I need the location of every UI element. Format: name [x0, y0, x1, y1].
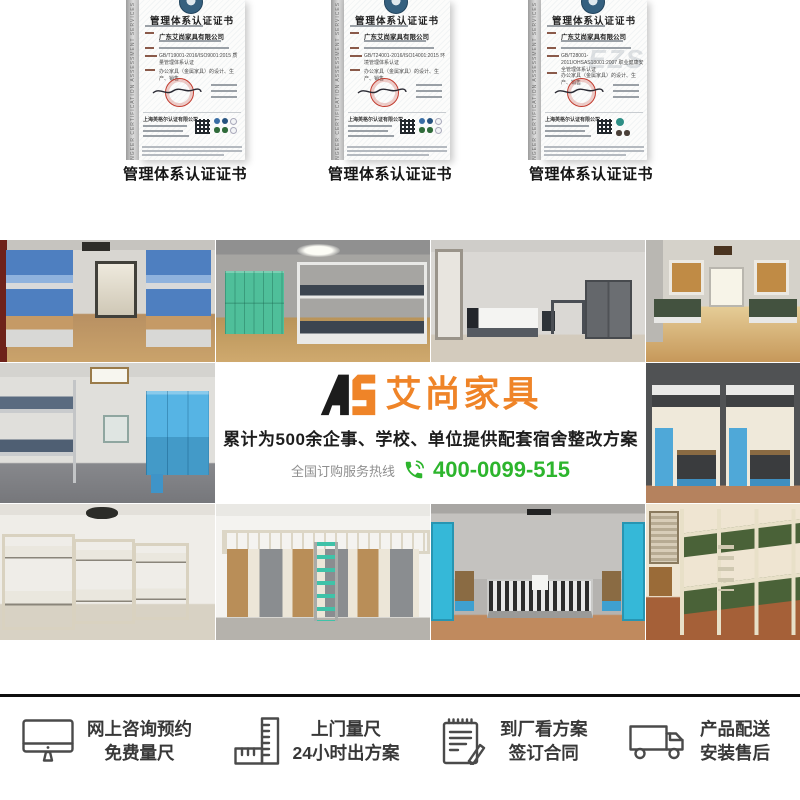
cabinet-shape: [585, 280, 632, 339]
bunk-bed-shape: [73, 539, 135, 624]
door-shape: [435, 249, 462, 340]
chair-shape: [151, 474, 164, 494]
service-online-consult: 网上咨询预约 免费量尺: [22, 717, 192, 765]
bunk-posts-shape: [680, 509, 800, 634]
phone-icon: [403, 459, 425, 481]
service-delivery-install: 产品配送 安装售后: [629, 717, 770, 765]
ceiling-light-shape: [714, 246, 732, 255]
badge-icon: [230, 118, 237, 125]
bunk-bed-shape: [297, 262, 427, 344]
signature-scribble: [356, 84, 408, 98]
photo-dark-loft-units-blue-lockers: [646, 363, 800, 503]
badge-icon: [222, 118, 228, 124]
ceiling-light-shape: [86, 507, 118, 519]
service-line1: 到厂看方案: [500, 717, 588, 741]
badge-icon: [427, 127, 433, 133]
certificate-side-band: INGEER CERTIFICATION ASSESSMENT SERVICES: [126, 0, 139, 160]
qr-code-icon: [195, 119, 210, 134]
single-beds-shape: [487, 579, 594, 618]
badge-icon: [222, 127, 228, 133]
picture-frame-shape: [103, 415, 129, 443]
badge-icon: [616, 118, 624, 126]
qr-code-icon: [400, 119, 415, 134]
ruler-icon: [234, 717, 280, 765]
ladder-shape: [718, 545, 733, 591]
as-logo-icon: [319, 372, 377, 416]
desk-chair-shape: [455, 571, 474, 611]
loft-unit-shape: [652, 385, 720, 486]
service-onsite-measure: 上门量尺 24小时出方案: [234, 717, 400, 765]
service-line2: 24小时出方案: [293, 741, 400, 765]
ceiling-light-shape: [297, 244, 340, 257]
page: { "certificates": { "caption": "管理体系认证证书…: [0, 0, 800, 800]
badge-icon: [435, 127, 442, 134]
certificate-emblem-icon: [384, 0, 408, 14]
bunk-bed-shape: [2, 534, 75, 630]
accreditation-badges: [419, 118, 447, 134]
certificate-quality: INGEER CERTIFICATION ASSESSMENT SERVICES…: [126, 0, 245, 160]
truck-icon: [629, 721, 687, 761]
bed-shape: [654, 299, 702, 343]
badge-icon: [214, 118, 220, 124]
photo-loft-wardrobe-desk-combo: [216, 504, 430, 640]
banner-tagline: 累计为500余企事、学校、单位提供配套宿舍整改方案: [216, 425, 645, 450]
photo-wood-floor-dorm-beds: [646, 240, 800, 362]
service-line2: 签订合同: [500, 741, 588, 765]
ceiling-light-shape: [82, 242, 110, 251]
logo: 艾尚家具: [216, 371, 645, 417]
bed-shape: [749, 299, 797, 343]
desk-shape: [551, 300, 585, 335]
service-line1: 上门量尺: [293, 717, 400, 741]
certificate-caption: 管理体系认证证书: [511, 163, 671, 184]
photo-blue-doors-single-beds: [431, 504, 645, 640]
service-line1: 网上咨询预约: [87, 717, 192, 741]
certificate-emblem-icon: [179, 0, 203, 14]
hotline-label: 全国订购服务热线: [291, 461, 395, 480]
certificate-standard: GB/T19001-2016/ISO9001:2015 质量管理体系认证: [159, 53, 242, 67]
blue-wardrobe-shape: [146, 391, 208, 475]
bunk-bed-shape: [0, 380, 76, 484]
brand-banner: 艾尚家具 累计为500余企事、学校、单位提供配套宿舍整改方案 全国订购服务热线 …: [216, 363, 645, 503]
cabinet-shape: [649, 567, 672, 597]
certificate-emblem-icon: [581, 0, 605, 14]
bunk-bed-shape: [6, 250, 73, 348]
badge-icon: [214, 127, 220, 133]
photo-single-bed-desk-cabinet: [431, 240, 645, 362]
certificate-standard: GB/T24001-2016/ISO14001:2015 环境管理体系认证: [364, 53, 447, 67]
service-line2: 免费量尺: [87, 741, 192, 765]
photo-bunk-and-blue-wardrobe-room: [0, 363, 215, 503]
signature-scribble: [151, 84, 203, 98]
contract-icon: [441, 717, 487, 765]
ceiling-light-shape: [527, 509, 551, 514]
hotline: 全国订购服务热线 400-0099-515: [216, 457, 645, 483]
accreditation-badges: [616, 118, 644, 136]
certificate-environment: INGEER CERTIFICATION ASSESSMENT SERVICES…: [331, 0, 450, 160]
photo-dorm-blue-bunks-desks: [0, 240, 215, 362]
certificate-ohs: INGEER CERTIFICATION ASSESSMENT SERVICES…: [528, 0, 647, 160]
window-shape: [709, 267, 744, 308]
photo-grid: 艾尚家具 累计为500余企事、学校、单位提供配套宿舍整改方案 全国订购服务热线 …: [0, 240, 800, 640]
desk-chair-shape: [602, 571, 621, 611]
certificate-standard: GB/T28001-2011/OHSAS18001:2007 职业健康安全管理体…: [561, 53, 644, 73]
overhead-cabinet-shape: [754, 260, 789, 295]
blue-door-shape: [622, 522, 645, 621]
certificate-side-band: INGEER CERTIFICATION ASSESSMENT SERVICES: [331, 0, 344, 160]
loft-unit-shape: [726, 385, 794, 486]
overhead-cabinet-shape: [669, 260, 704, 295]
window-shape: [95, 261, 138, 318]
hotline-number[interactable]: 400-0099-515: [433, 457, 570, 483]
certificate-issuer: 上海英格尔认证有限公司: [348, 116, 403, 123]
badge-icon: [419, 127, 425, 133]
bunk-bed-shape: [133, 543, 188, 620]
certificate-caption: 管理体系认证证书: [105, 163, 265, 184]
logo-text: 艾尚家具: [385, 376, 541, 412]
monitor-icon: [22, 719, 74, 763]
badge-icon: [624, 130, 630, 136]
certificates-section: INGEER CERTIFICATION ASSESSMENT SERVICES…: [0, 0, 800, 240]
accreditation-badges: [214, 118, 242, 134]
badge-icon: [230, 127, 237, 134]
ceiling-light-shape: [90, 367, 128, 384]
badge-icon: [616, 130, 622, 136]
signature-scribble: [553, 84, 605, 98]
locker-shape: [225, 271, 285, 334]
service-factory-contract: 到厂看方案 签订合同: [441, 717, 588, 765]
service-line1: 产品配送: [700, 717, 770, 741]
photo-cream-bunk-bed-room: [0, 504, 215, 640]
badge-icon: [419, 118, 425, 124]
qr-code-icon: [597, 119, 612, 134]
ladder-shape: [314, 542, 337, 621]
badge-icon: [435, 118, 442, 125]
photo-green-military-bunks: [646, 504, 800, 640]
badge-icon: [427, 118, 433, 124]
single-bed-shape: [467, 308, 538, 337]
certificate-caption: 管理体系认证证书: [310, 163, 470, 184]
bunk-bed-shape: [146, 250, 211, 348]
blue-door-shape: [431, 522, 454, 621]
certificate-issuer: 上海英格尔认证有限公司: [143, 116, 198, 123]
service-line2: 安装售后: [700, 741, 770, 765]
certificate-issuer: 上海英格尔认证有限公司: [545, 116, 600, 123]
photo-green-lockers-white-bunk: [216, 240, 430, 362]
service-features-bar: 网上咨询预约 免费量尺 上门量尺 24小时出方案: [0, 697, 800, 800]
certificate-side-band: INGEER CERTIFICATION ASSESSMENT SERVICES: [528, 0, 541, 160]
window-blinds-shape: [649, 511, 679, 564]
